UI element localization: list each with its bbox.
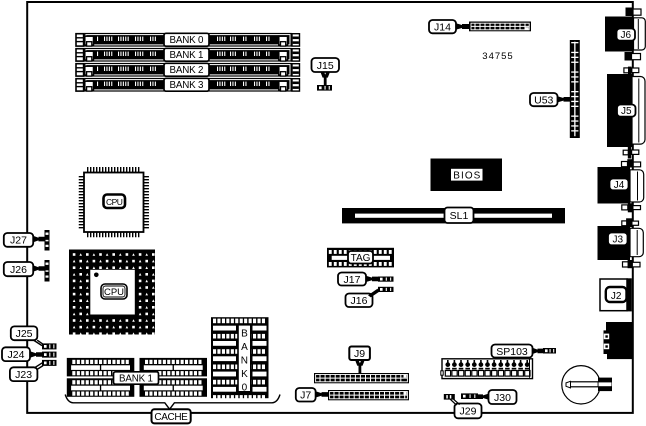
svg-text:J24: J24 [8,349,25,361]
svg-text:TAG: TAG [351,253,371,264]
svg-text:CACHE: CACHE [154,412,188,423]
svg-text:CPU: CPU [106,197,123,207]
svg-text:J3: J3 [612,235,623,246]
svg-text:J5: J5 [621,106,632,117]
svg-text:0: 0 [242,383,248,394]
svg-text:SL1: SL1 [450,210,469,222]
svg-text:J2: J2 [611,291,622,302]
svg-text:J4: J4 [614,180,625,191]
svg-text:J30: J30 [494,392,511,404]
svg-text:J26: J26 [10,264,27,276]
svg-text:J6: J6 [620,30,631,41]
svg-text:BANK 0: BANK 0 [170,35,205,46]
svg-text:J16: J16 [351,295,368,307]
svg-text:BIOS: BIOS [453,170,480,181]
svg-text:J7: J7 [300,390,311,402]
svg-text:B: B [241,329,248,340]
svg-text:J17: J17 [344,274,361,286]
svg-text:U53: U53 [534,94,553,106]
svg-text:K: K [241,369,248,380]
svg-text:SP103: SP103 [496,346,528,358]
svg-text:J25: J25 [16,328,33,340]
svg-text:J9: J9 [354,348,365,360]
svg-text:J23: J23 [15,369,32,381]
svg-text:34755: 34755 [482,51,513,62]
svg-text:A: A [241,342,248,353]
svg-text:J29: J29 [460,406,477,418]
svg-text:J14: J14 [434,21,451,33]
svg-text:BANK 2: BANK 2 [170,65,204,76]
svg-text:J15: J15 [317,60,334,72]
svg-text:BANK 3: BANK 3 [170,80,205,91]
svg-text:N: N [241,356,248,367]
svg-text:BANK 1: BANK 1 [170,50,204,61]
svg-text:BANK 1: BANK 1 [119,374,153,385]
svg-text:J27: J27 [10,235,27,247]
svg-text:CPU: CPU [104,287,124,298]
